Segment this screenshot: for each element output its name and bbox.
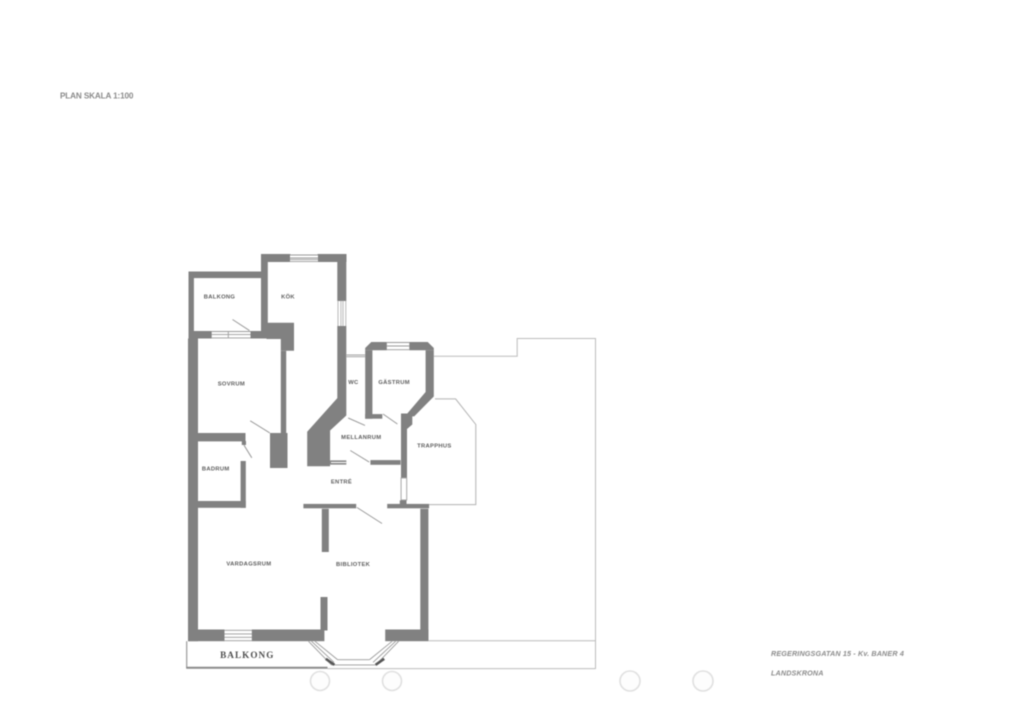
svg-text:PLAN SKALA 1:100: PLAN SKALA 1:100: [60, 92, 134, 101]
svg-text:TRAPPHUS: TRAPPHUS: [417, 444, 451, 450]
svg-text:LANDSKRONA: LANDSKRONA: [771, 669, 824, 678]
svg-text:WC: WC: [348, 380, 359, 386]
svg-text:VARDAGSRUM: VARDAGSRUM: [226, 562, 271, 568]
svg-text:REGERINGSGATAN 15 - Kv. BANER: REGERINGSGATAN 15 - Kv. BANER 4: [771, 649, 904, 658]
svg-text:KÖK: KÖK: [281, 293, 295, 300]
svg-text:SOVRUM: SOVRUM: [218, 381, 245, 387]
svg-text:BADRUM: BADRUM: [202, 467, 230, 473]
svg-text:BIBLIOTEK: BIBLIOTEK: [336, 562, 371, 568]
svg-text:BALKONG: BALKONG: [220, 650, 274, 660]
svg-text:BALKONG: BALKONG: [204, 294, 236, 300]
svg-text:GÄSTRUM: GÄSTRUM: [378, 379, 410, 386]
svg-text:MELLANRUM: MELLANRUM: [341, 435, 381, 441]
svg-text:ENTRÉ: ENTRÉ: [331, 478, 352, 486]
